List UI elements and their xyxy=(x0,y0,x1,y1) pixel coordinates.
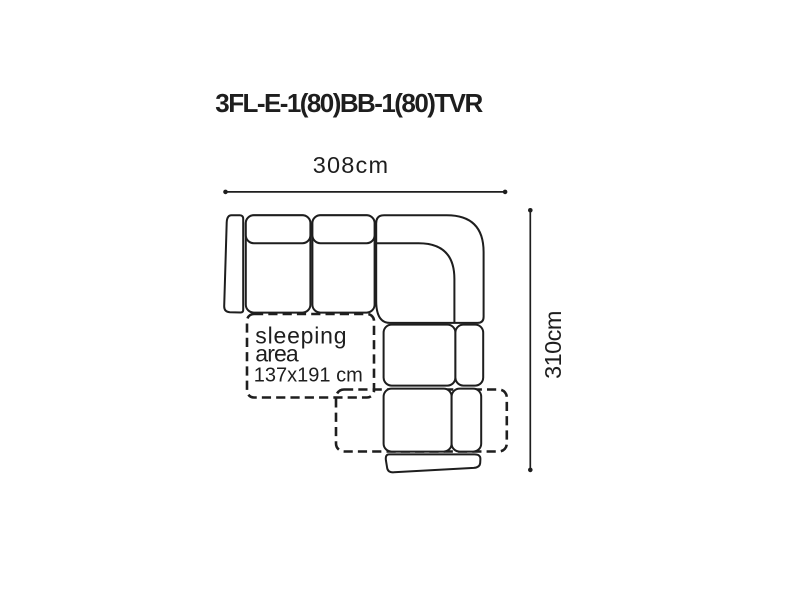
svg-text:3FL-E-1(80)BB-1(80)TVR: 3FL-E-1(80)BB-1(80)TVR xyxy=(215,88,483,118)
svg-text:308cm: 308cm xyxy=(313,152,390,178)
svg-text:310cm: 310cm xyxy=(540,311,566,379)
svg-text:area: area xyxy=(255,341,299,367)
svg-text:137x191 cm: 137x191 cm xyxy=(254,365,363,387)
